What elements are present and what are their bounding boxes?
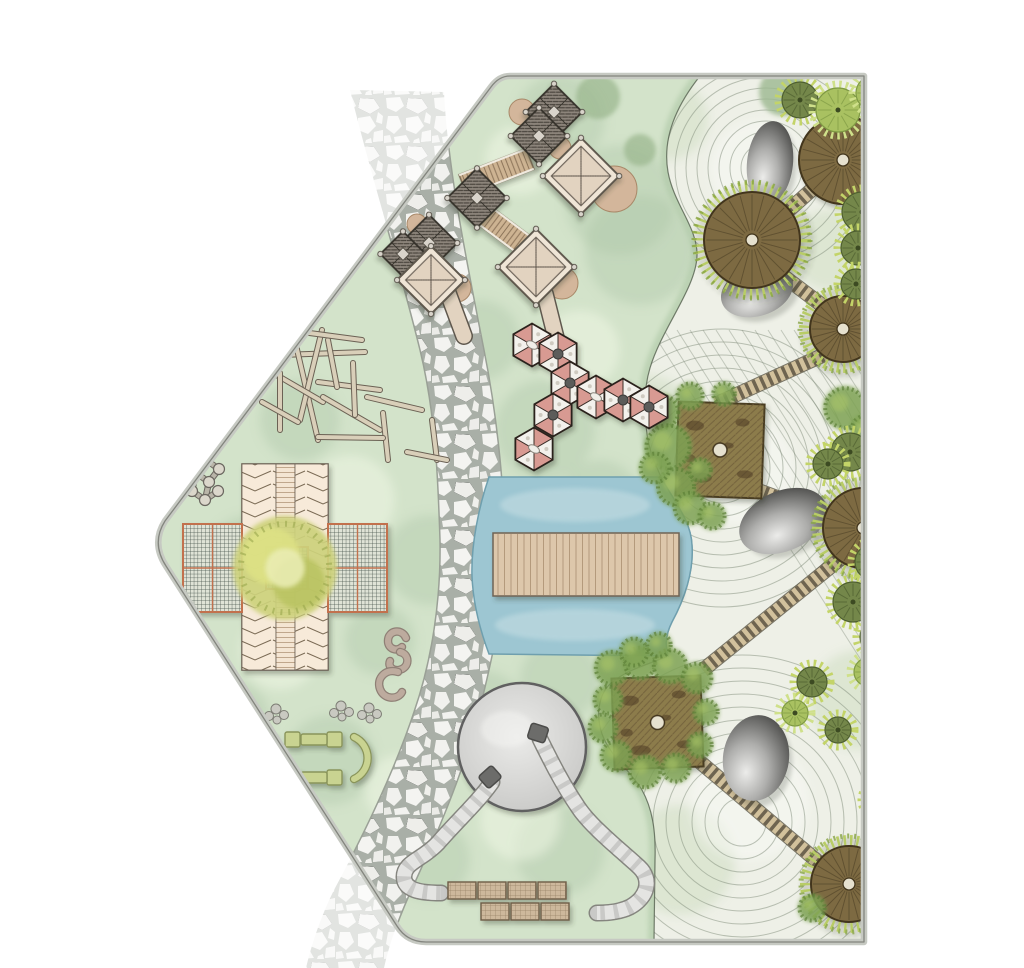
shrub [600,740,632,772]
shrub [588,713,618,743]
mat [478,882,506,899]
mat [511,903,539,920]
pebble [273,716,281,724]
pebble [366,715,374,723]
mat [508,882,536,899]
mat [481,903,509,920]
mat [448,882,476,899]
tree [778,696,812,730]
shrub [676,382,704,410]
wooden-bridge [493,533,679,596]
landscape-plan-svg [0,0,1024,968]
shrub [693,699,719,725]
shrub [593,685,623,715]
seat-cube [327,732,342,747]
pebble [330,709,339,718]
seat-cube [327,770,342,785]
shrub [639,452,671,484]
seat-table [301,734,327,745]
shrub [698,502,726,530]
mat [538,882,566,899]
shrub [681,662,713,694]
shrub [798,894,826,922]
shrub [619,637,649,667]
landscape-masterplan [0,0,1024,968]
shrub [687,732,713,758]
shrub [712,382,736,406]
shrub [661,753,691,783]
mat [541,903,569,920]
shrub [628,755,662,789]
tree [821,713,855,747]
pebble [338,713,346,721]
pebble [358,711,367,720]
shrub [646,632,672,658]
shrub [688,458,712,482]
seat-cube [285,732,300,747]
courtyard-tree-canopy [233,516,337,620]
soft-tree [624,134,656,166]
